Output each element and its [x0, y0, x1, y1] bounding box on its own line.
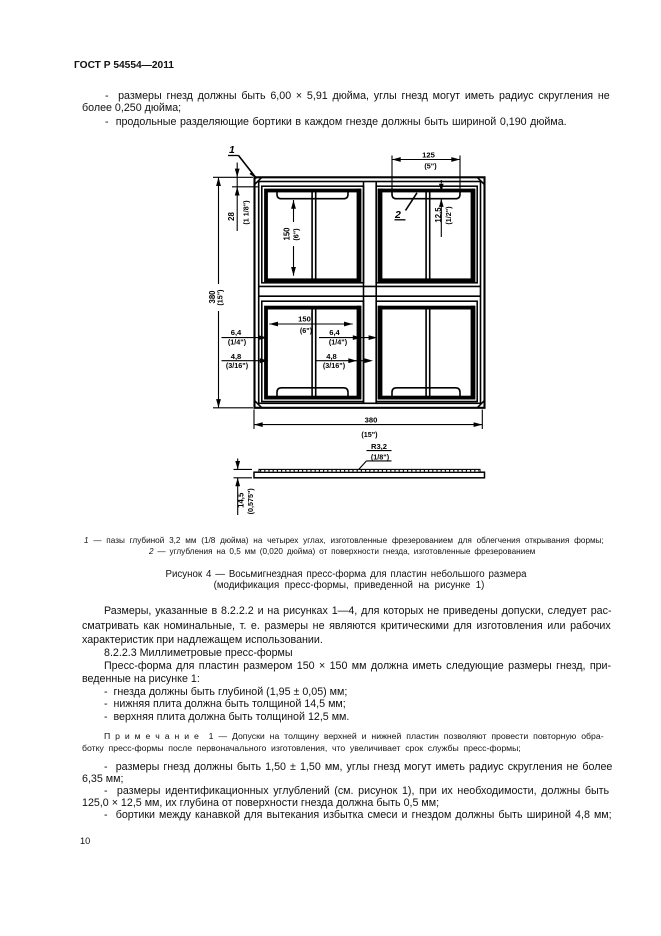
svg-text:(1/8"): (1/8") — [371, 452, 390, 461]
svg-text:R3,2: R3,2 — [371, 442, 387, 451]
svg-text:(6"): (6") — [292, 228, 301, 241]
svg-text:(1/4"): (1/4") — [329, 338, 348, 347]
svg-text:380: 380 — [365, 415, 378, 424]
svg-text:1: 1 — [229, 144, 235, 156]
svg-text:4,8: 4,8 — [231, 352, 242, 361]
svg-text:2: 2 — [394, 209, 401, 221]
svg-text:150: 150 — [283, 227, 292, 241]
svg-text:(15"): (15") — [216, 289, 225, 306]
svg-text:(6"): (6") — [300, 326, 313, 335]
svg-text:(3/16"): (3/16") — [323, 361, 346, 370]
svg-text:(1/2"): (1/2") — [444, 206, 453, 225]
svg-text:(1 1/8"): (1 1/8") — [242, 200, 251, 225]
svg-text:(5"): (5") — [424, 162, 437, 171]
svg-text:(1/4"): (1/4") — [228, 338, 247, 347]
svg-text:(3/16"): (3/16") — [226, 361, 249, 370]
svg-text:(0,575"): (0,575") — [246, 488, 255, 515]
svg-text:28: 28 — [227, 212, 236, 221]
svg-text:4,8: 4,8 — [326, 352, 337, 361]
svg-text:14,5: 14,5 — [237, 492, 246, 508]
svg-text:6,4: 6,4 — [231, 328, 242, 337]
svg-text:(15"): (15") — [361, 430, 378, 439]
svg-text:6,4: 6,4 — [329, 328, 340, 337]
svg-text:125: 125 — [422, 151, 435, 160]
svg-text:12,5: 12,5 — [434, 207, 443, 223]
svg-text:150: 150 — [298, 315, 311, 324]
